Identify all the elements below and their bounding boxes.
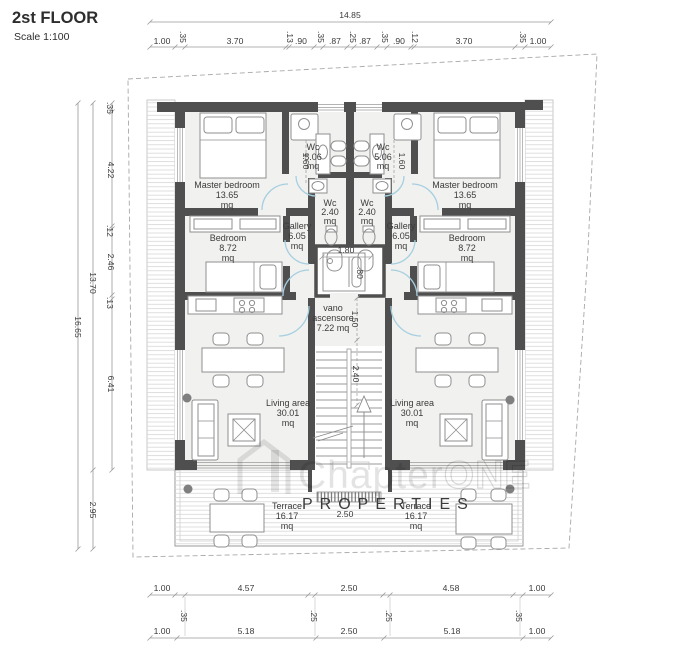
svg-text:.35: .35	[179, 610, 189, 622]
side-table-left	[228, 414, 260, 446]
dim-lobby-depth: 1.50	[350, 311, 360, 328]
svg-text:.90: .90	[295, 36, 307, 46]
bed-master-right	[434, 113, 500, 178]
svg-text:.13: .13	[105, 297, 115, 309]
svg-text:mq: mq	[459, 200, 472, 210]
bed-master-left	[200, 113, 266, 178]
watermark-subtitle: PROPERTIES	[302, 496, 475, 513]
svg-text:.87: .87	[329, 36, 341, 46]
dim-top-overall: 14.85	[339, 10, 361, 20]
svg-text:mq: mq	[395, 241, 408, 251]
svg-text:8.72: 8.72	[219, 243, 237, 253]
svg-text:.35: .35	[105, 102, 115, 114]
svg-text:mq: mq	[221, 200, 234, 210]
label-wc-large-right: Wc	[377, 142, 390, 152]
svg-text:mq: mq	[291, 241, 304, 251]
svg-text:mq: mq	[461, 253, 474, 263]
svg-text:.35: .35	[380, 31, 390, 43]
label-gallery-left: Gallery	[283, 221, 312, 231]
svg-text:2.95: 2.95	[88, 502, 98, 519]
label-terrace-right: Terrace	[401, 501, 431, 511]
label-elevator: vano	[323, 303, 343, 313]
svg-text:.90: .90	[393, 36, 405, 46]
svg-text:1.00: 1.00	[154, 626, 171, 636]
sink-left-1	[331, 141, 346, 151]
svg-text:16.17: 16.17	[276, 511, 299, 521]
sink-left-2	[331, 156, 346, 166]
svg-text:.12: .12	[105, 225, 115, 237]
svg-text:5.18: 5.18	[444, 626, 461, 636]
svg-text:.13: .13	[285, 31, 295, 43]
svg-text:mq: mq	[406, 418, 419, 428]
svg-text:30.01: 30.01	[401, 408, 424, 418]
page-title: 2st FLOOR	[12, 9, 98, 27]
dim-left-outer: 16.65	[73, 316, 83, 338]
label-master-left: Master bedroom	[194, 180, 260, 190]
svg-text:mq: mq	[377, 161, 390, 171]
bed-bedroom-left	[206, 262, 282, 292]
dim-terrace-opening: 2.50	[337, 509, 354, 519]
dim-elevator-door: .80	[355, 267, 365, 279]
bed-bedroom-right	[418, 262, 494, 292]
svg-text:1.00: 1.00	[529, 583, 546, 593]
svg-text:6.05: 6.05	[288, 231, 306, 241]
side-table-right	[440, 414, 472, 446]
svg-text:2.46: 2.46	[106, 254, 116, 271]
svg-text:1.00: 1.00	[154, 583, 171, 593]
svg-text:1.00: 1.00	[154, 36, 171, 46]
svg-text:1.00: 1.00	[530, 36, 547, 46]
svg-text:6.05: 6.05	[392, 231, 410, 241]
watermark-brand: ChapterONE	[298, 454, 531, 497]
label-bedroom-right: Bedroom	[449, 233, 486, 243]
shower-right	[394, 114, 421, 140]
svg-text:3.70: 3.70	[227, 36, 244, 46]
svg-text:mq: mq	[282, 418, 295, 428]
svg-text:mq: mq	[222, 253, 235, 263]
svg-text:2.50: 2.50	[341, 626, 358, 636]
dim-wc-width-right: 1.60	[397, 153, 407, 170]
floor-plan-drawing: 2st FLOOR Scale 1:100	[0, 0, 683, 672]
svg-text:4.57: 4.57	[238, 583, 255, 593]
svg-text:4.58: 4.58	[443, 583, 460, 593]
svg-text:7.22 mq: 7.22 mq	[317, 323, 350, 333]
svg-text:4.22: 4.22	[106, 162, 116, 179]
label-living-left: Living area	[266, 398, 310, 408]
label-terrace-left: Terrace	[272, 501, 302, 511]
label-bedroom-left: Bedroom	[210, 233, 247, 243]
svg-text:mq: mq	[361, 216, 374, 226]
svg-text:.25: .25	[348, 31, 358, 43]
svg-text:6.41: 6.41	[106, 376, 116, 393]
dim-left-inner: 13.70	[88, 272, 98, 294]
dim-elevator-width: 1.80	[338, 245, 355, 255]
svg-text:.35: .35	[518, 31, 528, 43]
svg-text:5.18: 5.18	[238, 626, 255, 636]
svg-text:.35: .35	[514, 610, 524, 622]
wardrobe-right	[420, 216, 510, 232]
svg-text:ascensore: ascensore	[312, 313, 354, 323]
svg-text:.87: .87	[359, 36, 371, 46]
svg-text:30.01: 30.01	[277, 408, 300, 418]
svg-text:8.72: 8.72	[458, 243, 476, 253]
kitchen-right	[418, 296, 512, 314]
label-gallery-right: Gallery	[387, 221, 416, 231]
svg-text:mq: mq	[281, 521, 294, 531]
svg-text:.35: .35	[316, 31, 326, 43]
dim-stair-depth: 2.40	[351, 366, 361, 383]
svg-text:13.65: 13.65	[454, 190, 477, 200]
svg-text:1.00: 1.00	[529, 626, 546, 636]
wardrobe-left	[190, 216, 280, 232]
floor-plan-sheet: 2st FLOOR Scale 1:100	[0, 0, 683, 672]
svg-text:.35: .35	[178, 31, 188, 43]
sink-right-2	[354, 156, 369, 166]
roof-band-left	[147, 100, 175, 470]
svg-text:16.17: 16.17	[405, 511, 428, 521]
scale-note: Scale 1:100	[14, 31, 70, 43]
label-master-right: Master bedroom	[432, 180, 498, 190]
shower-left	[291, 114, 318, 140]
svg-text:.12: .12	[410, 31, 420, 43]
sofa-left	[192, 400, 218, 460]
svg-text:3.70: 3.70	[456, 36, 473, 46]
svg-text:.25: .25	[309, 610, 319, 622]
svg-text:mq: mq	[324, 216, 337, 226]
dim-wc-width-left: 1.60	[301, 153, 311, 170]
svg-text:2.50: 2.50	[341, 583, 358, 593]
sofa-right	[482, 400, 508, 460]
svg-text:mq: mq	[410, 521, 423, 531]
svg-text:.25: .25	[384, 610, 394, 622]
roof-band-right	[525, 100, 553, 470]
label-wc-large-left: Wc	[307, 142, 320, 152]
label-living-right: Living area	[390, 398, 434, 408]
svg-text:13.65: 13.65	[216, 190, 239, 200]
kitchen-left	[188, 296, 282, 314]
sink-right-1	[354, 141, 369, 151]
